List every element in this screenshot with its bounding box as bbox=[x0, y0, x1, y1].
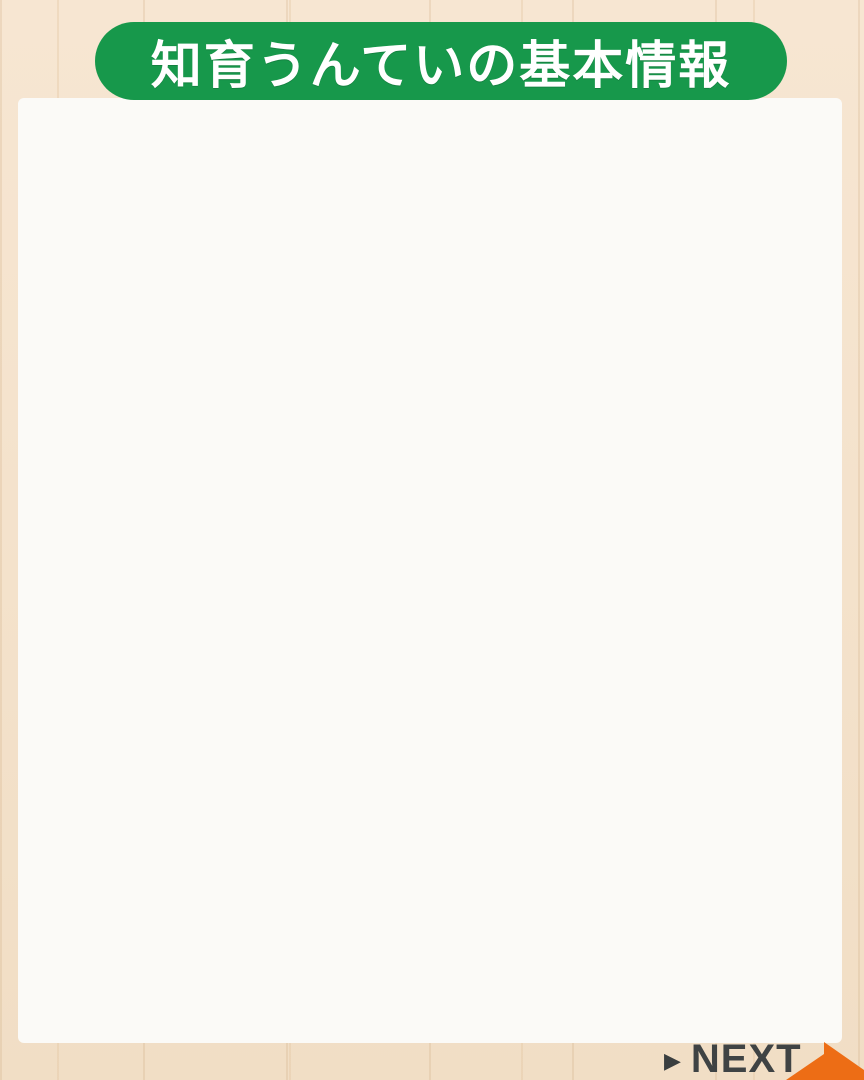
next-label: NEXT bbox=[691, 1037, 802, 1080]
header-banner: 知育うんていの基本情報 bbox=[95, 22, 787, 100]
info-card bbox=[18, 98, 842, 1043]
page-title: 知育うんていの基本情報 bbox=[151, 24, 731, 98]
play-icon: ▶ bbox=[664, 1046, 681, 1072]
page: 知育うんていの基本情報 bbox=[0, 0, 864, 1080]
next-button[interactable]: ▶ NEXT bbox=[664, 1038, 802, 1080]
